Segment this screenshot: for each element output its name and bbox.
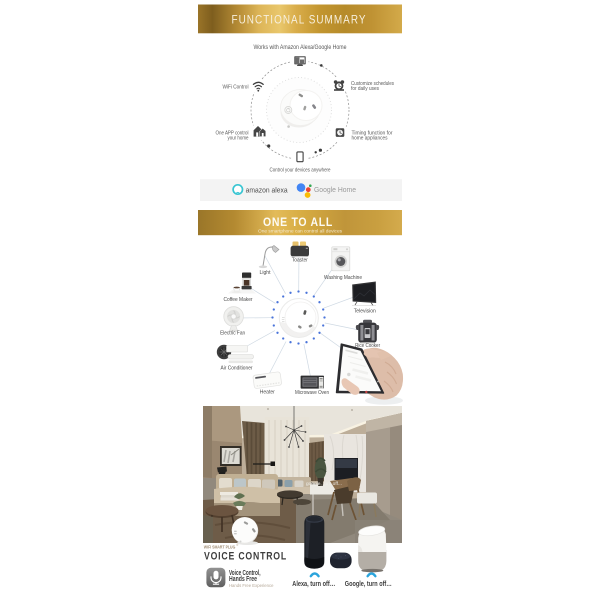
svg-text:Air Conditioner: Air Conditioner xyxy=(221,366,253,372)
svg-text:WiFi Control: WiFi Control xyxy=(223,84,249,90)
svg-text:VOICE CONTROL: VOICE CONTROL xyxy=(204,551,287,563)
svg-text:Microwave Oven: Microwave Oven xyxy=(295,390,329,396)
svg-text:Hands Free Experience: Hands Free Experience xyxy=(229,583,274,589)
svg-text:Heater: Heater xyxy=(260,389,275,395)
svg-text:Works with Amazon Alexa/Google: Works with Amazon Alexa/Google Home xyxy=(254,44,347,51)
svg-text:ONE TO ALL: ONE TO ALL xyxy=(263,215,333,229)
svg-text:Control your devices anywhere: Control your devices anywhere xyxy=(270,167,331,173)
svg-text:google, turn off...: google, turn off... xyxy=(306,481,342,487)
svg-text:Toaster: Toaster xyxy=(292,257,308,263)
svg-text:Television: Television xyxy=(354,308,376,314)
svg-text:FUNCTIONAL SUMMARY: FUNCTIONAL SUMMARY xyxy=(232,15,367,27)
svg-text:WIFI SMART PLUG: WIFI SMART PLUG xyxy=(204,544,236,549)
svg-text:for daily uses: for daily uses xyxy=(351,86,379,92)
svg-text:your home: your home xyxy=(228,136,249,142)
svg-text:One smartphone can control all: One smartphone can control all devices xyxy=(258,229,343,235)
svg-text:Light: Light xyxy=(260,270,271,276)
svg-text:amazon alexa: amazon alexa xyxy=(246,187,288,194)
svg-text:Washing Machine: Washing Machine xyxy=(324,275,362,281)
svg-text:home appliances: home appliances xyxy=(352,136,388,142)
svg-text:Coffee Maker: Coffee Maker xyxy=(224,297,253,303)
svg-text:Google, turn off…: Google, turn off… xyxy=(345,579,392,588)
svg-text:Google Home: Google Home xyxy=(314,187,356,194)
svg-text:Hands Free: Hands Free xyxy=(229,576,257,583)
svg-text:Alexa, turn off…: Alexa, turn off… xyxy=(292,579,335,588)
svg-text:Electric Fan: Electric Fan xyxy=(220,330,245,336)
